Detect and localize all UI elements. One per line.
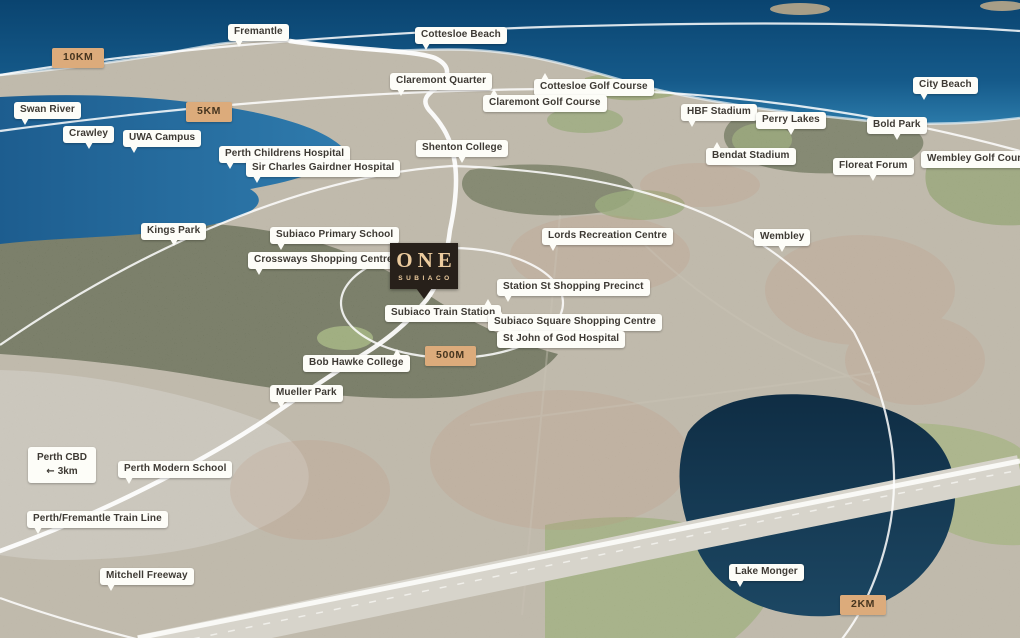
map-label-claremont-golf-course: Claremont Golf Course [483, 95, 607, 112]
perth-cbd-distance-note: Perth CBD ←3km [28, 447, 96, 483]
map-label-bob-hawke-college: Bob Hawke College [303, 355, 410, 372]
map-label-crawley: Crawley [63, 126, 114, 143]
map-label-hbf-stadium: HBF Stadium [681, 104, 757, 121]
map-label-sir-charles-gairdner-hospital: Sir Charles Gairdner Hospital [246, 160, 400, 177]
map-label-mitchell-freeway: Mitchell Freeway [100, 568, 194, 585]
aerial-map: FremantleCottesloe BeachClaremont Quarte… [0, 0, 1020, 638]
map-label-uwa-campus: UWA Campus [123, 130, 201, 147]
map-label-subiaco-train-station: Subiaco Train Station [385, 305, 501, 322]
map-label-st-john-of-god-hospital: St John of God Hospital [497, 331, 625, 348]
map-label-floreat-forum: Floreat Forum [833, 158, 914, 175]
map-label-subiaco-square-shopping-centre: Subiaco Square Shopping Centre [488, 314, 662, 331]
map-label-swan-river: Swan River [14, 102, 81, 119]
map-label-claremont-quarter: Claremont Quarter [390, 73, 492, 90]
map-label-perry-lakes: Perry Lakes [756, 112, 826, 129]
map-label-cottesloe-beach: Cottesloe Beach [415, 27, 507, 44]
distance-badge-10km: 10KM [52, 48, 104, 68]
brand-subname: SUBIACO [390, 275, 458, 282]
cbd-note-line1: Perth CBD [37, 451, 87, 465]
map-label-shenton-college: Shenton College [416, 140, 508, 157]
map-label-city-beach: City Beach [913, 77, 978, 94]
map-label-wembley: Wembley [754, 229, 810, 246]
one-subiaco-brand-pin: ONE SUBIACO [390, 243, 458, 289]
brand-name: ONE [390, 250, 458, 271]
map-label-fremantle: Fremantle [228, 24, 289, 41]
map-label-lords-recreation-centre: Lords Recreation Centre [542, 228, 673, 245]
map-label-wembley-golf-course: Wembley Golf Course [921, 151, 1020, 168]
distance-badge-500m: 500M [425, 346, 476, 366]
map-label-mueller-park: Mueller Park [270, 385, 343, 402]
island [770, 3, 830, 15]
distance-badge-2km: 2KM [840, 595, 886, 615]
map-label-bendat-stadium: Bendat Stadium [706, 148, 796, 165]
map-label-station-st-shopping-precinct: Station St Shopping Precinct [497, 279, 650, 296]
left-arrow-icon: ← [46, 466, 53, 477]
map-label-cottesloe-golf-course: Cottesloe Golf Course [534, 79, 654, 96]
map-label-bold-park: Bold Park [867, 117, 927, 134]
cbd-note-distance: 3km [58, 466, 78, 477]
map-label-lake-monger: Lake Monger [729, 564, 804, 581]
distance-badge-5km: 5KM [186, 102, 232, 122]
map-label-perth-fremantle-train-line: Perth/Fremantle Train Line [27, 511, 168, 528]
cbd-note-line2: ←3km [37, 465, 87, 479]
map-label-kings-park: Kings Park [141, 223, 206, 240]
map-label-subiaco-primary-school: Subiaco Primary School [270, 227, 399, 244]
map-label-crossways-shopping-centre: Crossways Shopping Centre [248, 252, 399, 269]
map-label-perth-modern-school: Perth Modern School [118, 461, 232, 478]
